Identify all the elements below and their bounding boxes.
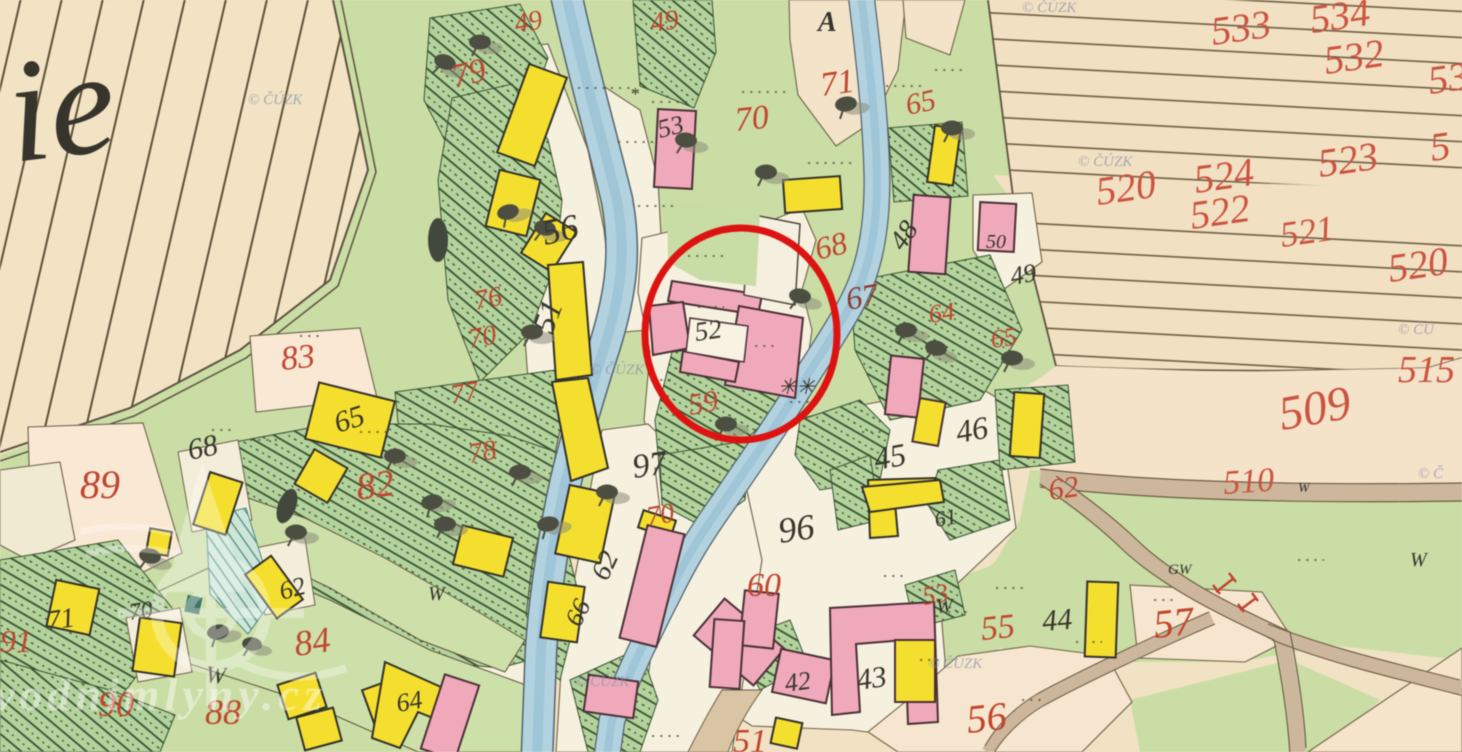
svg-text:*: * <box>630 84 639 104</box>
svg-text:W: W <box>1410 549 1429 571</box>
svg-text:60: 60 <box>747 567 781 604</box>
svg-text:© ČÚZK: © ČÚZK <box>590 361 645 378</box>
svg-text:62: 62 <box>1046 470 1080 507</box>
svg-text:45: 45 <box>871 436 909 477</box>
svg-text:82: 82 <box>353 462 396 509</box>
svg-text:532: 532 <box>1321 30 1387 83</box>
svg-text:515: 515 <box>1398 349 1455 391</box>
svg-text:44: 44 <box>1041 602 1074 637</box>
svg-text:55: 55 <box>979 608 1017 648</box>
svg-text:96: 96 <box>776 506 817 551</box>
svg-text:© ČÚ: © ČÚ <box>1398 321 1435 338</box>
svg-text:65: 65 <box>989 322 1019 354</box>
svg-text:89: 89 <box>80 462 120 507</box>
svg-text:ie: ie <box>0 19 124 195</box>
svg-text:GW: GW <box>1168 562 1193 578</box>
svg-text:42: 42 <box>783 666 813 698</box>
svg-text:70: 70 <box>466 320 499 355</box>
svg-text:510: 510 <box>1222 462 1275 502</box>
svg-text:71: 71 <box>45 602 77 637</box>
svg-text:46: 46 <box>953 409 991 450</box>
svg-text:49: 49 <box>1008 258 1039 291</box>
svg-text:70: 70 <box>733 99 771 139</box>
svg-text:43: 43 <box>854 660 888 697</box>
svg-text:70: 70 <box>644 498 677 533</box>
svg-text:71: 71 <box>818 63 857 104</box>
svg-text:61: 61 <box>933 503 959 531</box>
svg-text:51: 51 <box>733 723 767 752</box>
svg-text:522: 522 <box>1187 185 1253 238</box>
svg-text:vodnimlyny.cz: vodnimlyny.cz <box>0 669 327 720</box>
svg-text:A: A <box>816 7 837 38</box>
svg-text:© ČÚZK: © ČÚZK <box>575 673 630 690</box>
svg-text:59: 59 <box>685 384 720 422</box>
svg-text:56: 56 <box>964 693 1008 742</box>
svg-text:533: 533 <box>1208 1 1274 54</box>
svg-text:© ČÚZK: © ČÚZK <box>1078 153 1133 170</box>
svg-text:520: 520 <box>1385 238 1451 291</box>
svg-text:© ČÚZK: © ČÚZK <box>1022 0 1077 16</box>
svg-text:52: 52 <box>693 313 724 346</box>
svg-text:91: 91 <box>0 623 32 659</box>
svg-text:521: 521 <box>1278 208 1337 255</box>
svg-text:83: 83 <box>279 338 317 378</box>
svg-text:64: 64 <box>394 685 425 718</box>
svg-text:© ČÚZK: © ČÚZK <box>248 91 303 108</box>
svg-text:78: 78 <box>466 435 499 470</box>
svg-text:W: W <box>936 595 955 617</box>
svg-text:49: 49 <box>649 4 681 39</box>
svg-text:49: 49 <box>512 5 545 40</box>
svg-text:53: 53 <box>1425 53 1462 103</box>
svg-text:84: 84 <box>292 619 333 664</box>
svg-text:W: W <box>428 583 447 605</box>
svg-text:© ČÚZK: © ČÚZK <box>928 655 983 672</box>
svg-text:✳✳: ✳✳ <box>778 374 816 399</box>
svg-text:523: 523 <box>1315 133 1381 186</box>
svg-text:50: 50 <box>986 231 1006 253</box>
svg-text:© Č: © Č <box>1418 465 1444 482</box>
svg-text:57: 57 <box>1151 598 1197 647</box>
svg-text:64: 64 <box>927 297 957 329</box>
svg-text:W: W <box>1298 481 1311 496</box>
